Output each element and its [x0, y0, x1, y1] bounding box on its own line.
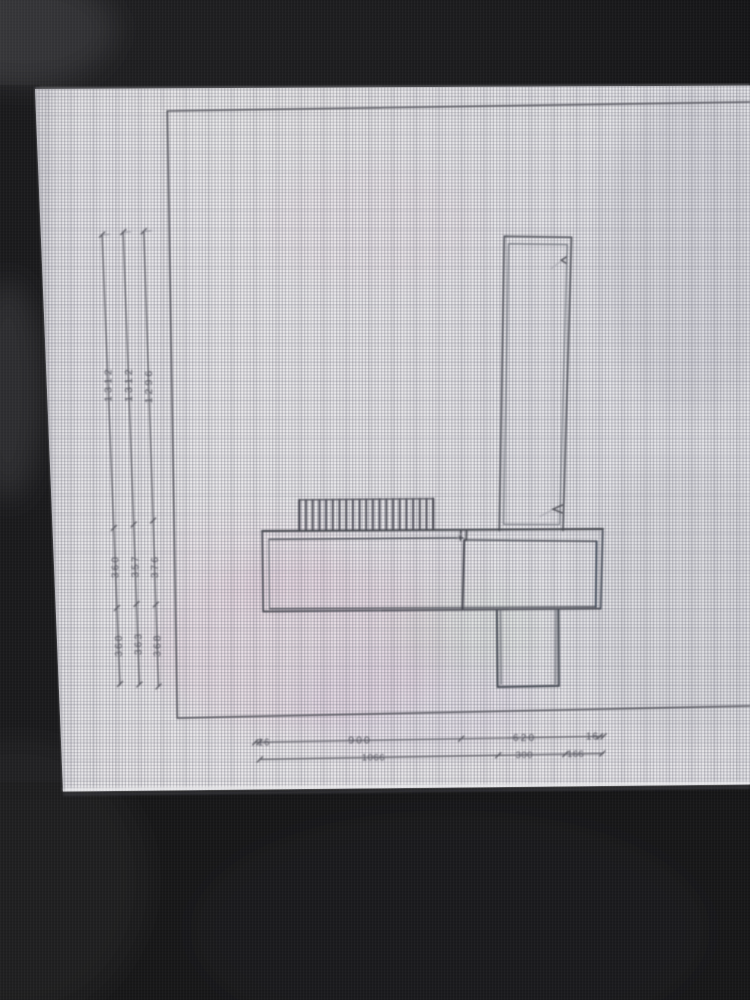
- svg-text:360: 360: [114, 633, 125, 656]
- svg-text:300: 300: [515, 750, 533, 761]
- svg-text:368: 368: [153, 633, 164, 656]
- svg-text:1296: 1296: [143, 368, 155, 404]
- svg-text:363: 363: [133, 632, 144, 655]
- svg-text:1312: 1312: [102, 366, 114, 402]
- svg-text:16: 16: [586, 732, 599, 743]
- svg-text:900: 900: [348, 735, 372, 747]
- svg-text:357: 357: [131, 554, 142, 577]
- svg-text:620: 620: [513, 732, 537, 744]
- svg-text:376: 376: [150, 555, 161, 578]
- svg-text:1066: 1066: [362, 753, 386, 764]
- svg-text:166: 166: [567, 749, 584, 760]
- svg-text:1312: 1312: [123, 366, 135, 402]
- svg-text:16: 16: [258, 737, 271, 748]
- svg-text:360: 360: [111, 555, 122, 578]
